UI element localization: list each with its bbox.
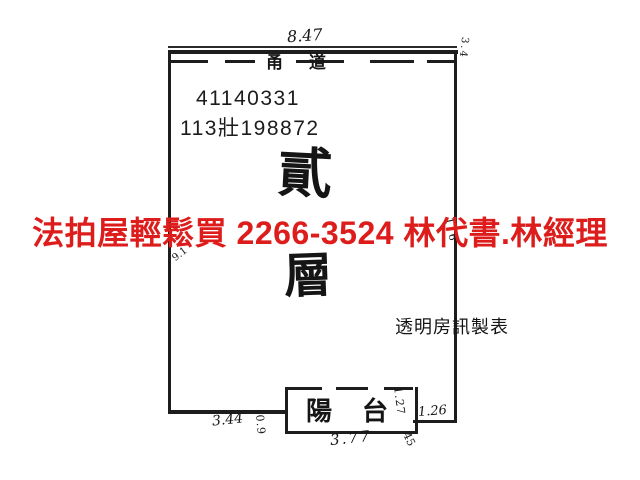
floor-label-char-top: 貳 [277,145,334,202]
ad-overlay-text: 法拍屋輕鬆買 2266-3524 林代書.林經理 [0,216,640,251]
dimension-bottom-left: 3.44 [211,410,244,429]
corridor-label: 甬 道 [266,48,326,73]
top-inner-dash [370,60,414,63]
maker-credit-label: 透明房訊製表 [395,313,509,339]
top-inner-dash [427,60,454,63]
dimension-top-width: 8.47 [286,25,323,46]
registration-number-2: 113壯198872 [180,112,320,142]
top-inner-dash [170,60,208,63]
corner-note-top-right: 3.4 [457,36,470,59]
balcony-top-dash [336,387,368,390]
wall-bottom-right [413,420,457,423]
registration-number-1: 41140331 [196,87,300,111]
dimension-bottom-right: 1.26 [418,403,448,420]
balcony-label: 陽台 [306,391,418,428]
top-inner-dash [225,60,255,63]
floor-label-char-bottom: 層 [283,251,333,301]
floorplan-canvas: 8.47 甬 道 3.4 41140331 113壯198872 貳 層 9.1… [0,0,640,480]
dimension-balcony-left: 0.9 [253,414,268,436]
balcony-top-dash [287,387,322,390]
dimension-balcony-bottom: 3.77 [329,427,372,449]
